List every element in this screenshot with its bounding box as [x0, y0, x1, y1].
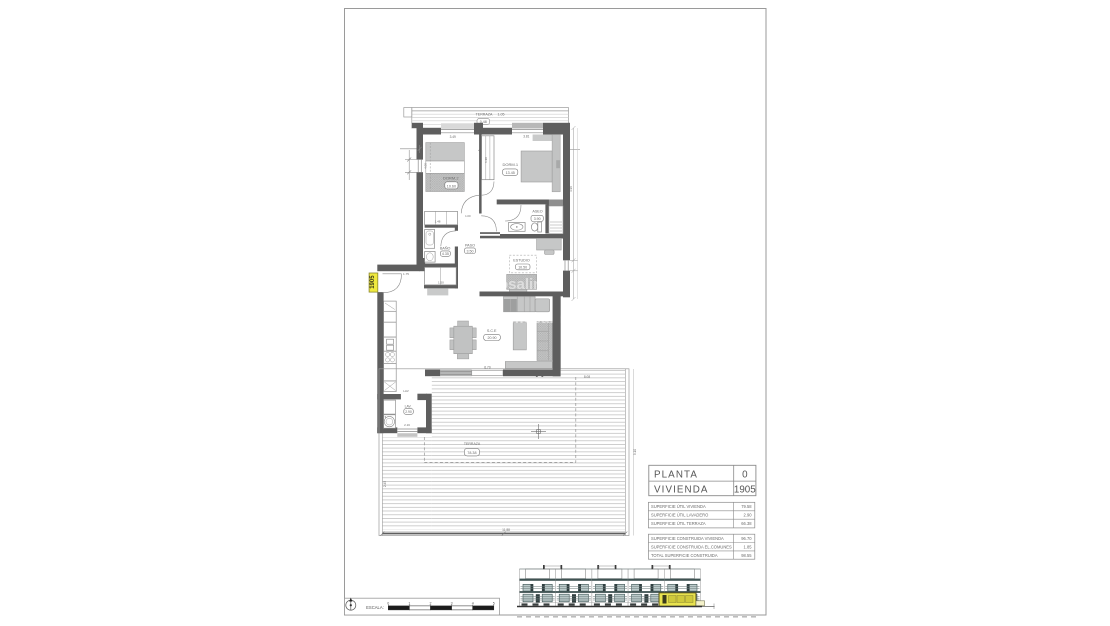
svg-text:66.38: 66.38 [741, 521, 752, 526]
svg-text:1.48: 1.48 [435, 219, 441, 223]
svg-text:3.90: 3.90 [534, 217, 541, 221]
svg-text:1905: 1905 [370, 275, 376, 289]
svg-text:2.16: 2.16 [404, 423, 410, 427]
svg-text:LAV.: LAV. [405, 405, 412, 409]
svg-text:ESTUDIO: ESTUDIO [513, 258, 530, 262]
svg-text:13.45: 13.45 [506, 171, 515, 175]
svg-text:TERRAZA: TERRAZA [464, 442, 481, 446]
svg-text:10.60: 10.60 [447, 184, 456, 188]
svg-text:3: 3 [451, 601, 453, 605]
svg-text:PLANTA: PLANTA [654, 470, 698, 481]
svg-text:TERRAZA: TERRAZA [476, 113, 493, 117]
svg-text:SUPERFICIE CONSTRUIDA VIVIENDA: SUPERFICIE CONSTRUIDA VIVIENDA [651, 536, 724, 541]
svg-text:DORM.1: DORM.1 [503, 162, 519, 167]
svg-text:11.88: 11.88 [502, 528, 510, 532]
svg-text:1.00: 1.00 [465, 214, 471, 218]
svg-text:osalina: osalina [499, 276, 551, 293]
svg-text:10.50: 10.50 [518, 266, 527, 270]
svg-text:1.50: 1.50 [438, 280, 444, 284]
svg-text:1.90: 1.90 [484, 157, 488, 163]
svg-text:98.55: 98.55 [741, 553, 752, 558]
svg-text:5: 5 [493, 601, 495, 605]
svg-text:1.75: 1.75 [403, 272, 409, 276]
svg-text:SUPERFICIE ÚTIL LAVADERO: SUPERFICIE ÚTIL LAVADERO [651, 513, 708, 518]
svg-text:PASO: PASO [465, 243, 475, 247]
svg-text:ESCALA:: ESCALA: [366, 605, 384, 610]
svg-text:8.08: 8.08 [584, 375, 590, 379]
svg-text:2.90: 2.90 [405, 410, 412, 414]
svg-text:1905: 1905 [734, 485, 756, 496]
svg-text:3.49: 3.49 [450, 135, 456, 139]
svg-text:79.58: 79.58 [741, 504, 752, 509]
svg-text:BAÑO: BAÑO [440, 245, 451, 250]
svg-text:4.35: 4.35 [442, 252, 449, 256]
svg-text:1: 1 [408, 601, 410, 605]
svg-text:TOTAL SUPERFICIE CONSTRUIDA: TOTAL SUPERFICIE CONSTRUIDA [651, 553, 718, 558]
svg-text:3.96: 3.96 [569, 186, 573, 192]
svg-text:20.90: 20.90 [488, 336, 497, 340]
svg-text:78.38: 78.38 [467, 451, 476, 455]
svg-text:LAV: LAV [403, 389, 408, 393]
svg-text:2.45: 2.45 [383, 481, 387, 487]
svg-text:SUPERFICIE ÚTIL TERRAZA: SUPERFICIE ÚTIL TERRAZA [651, 521, 706, 526]
svg-text:VIVIENDA: VIVIENDA [654, 485, 709, 496]
svg-text:SUPERFICIE ÚTIL VIVIENDA: SUPERFICIE ÚTIL VIVIENDA [651, 504, 706, 509]
svg-text:0: 0 [387, 601, 389, 605]
svg-text:S.C.E: S.C.E [487, 329, 497, 333]
svg-text:96.70: 96.70 [741, 536, 752, 541]
svg-text:4: 4 [472, 601, 474, 605]
svg-text:1.85: 1.85 [744, 544, 753, 549]
svg-text:DORM.2: DORM.2 [443, 176, 459, 181]
svg-text:9.10: 9.10 [633, 449, 637, 455]
svg-text:ASEO: ASEO [532, 210, 542, 214]
svg-text:3.50: 3.50 [467, 249, 474, 253]
svg-text:0: 0 [742, 470, 748, 481]
svg-text:2.90: 2.90 [744, 513, 753, 518]
svg-text:1.05: 1.05 [498, 113, 505, 117]
svg-text:SUPERFICIE CONSTRUIDA EL.COMUN: SUPERFICIE CONSTRUIDA EL.COMUNES [651, 544, 732, 549]
svg-text:4.00: 4.00 [424, 163, 428, 169]
svg-text:2: 2 [430, 601, 432, 605]
svg-text:3.81: 3.81 [523, 135, 529, 139]
